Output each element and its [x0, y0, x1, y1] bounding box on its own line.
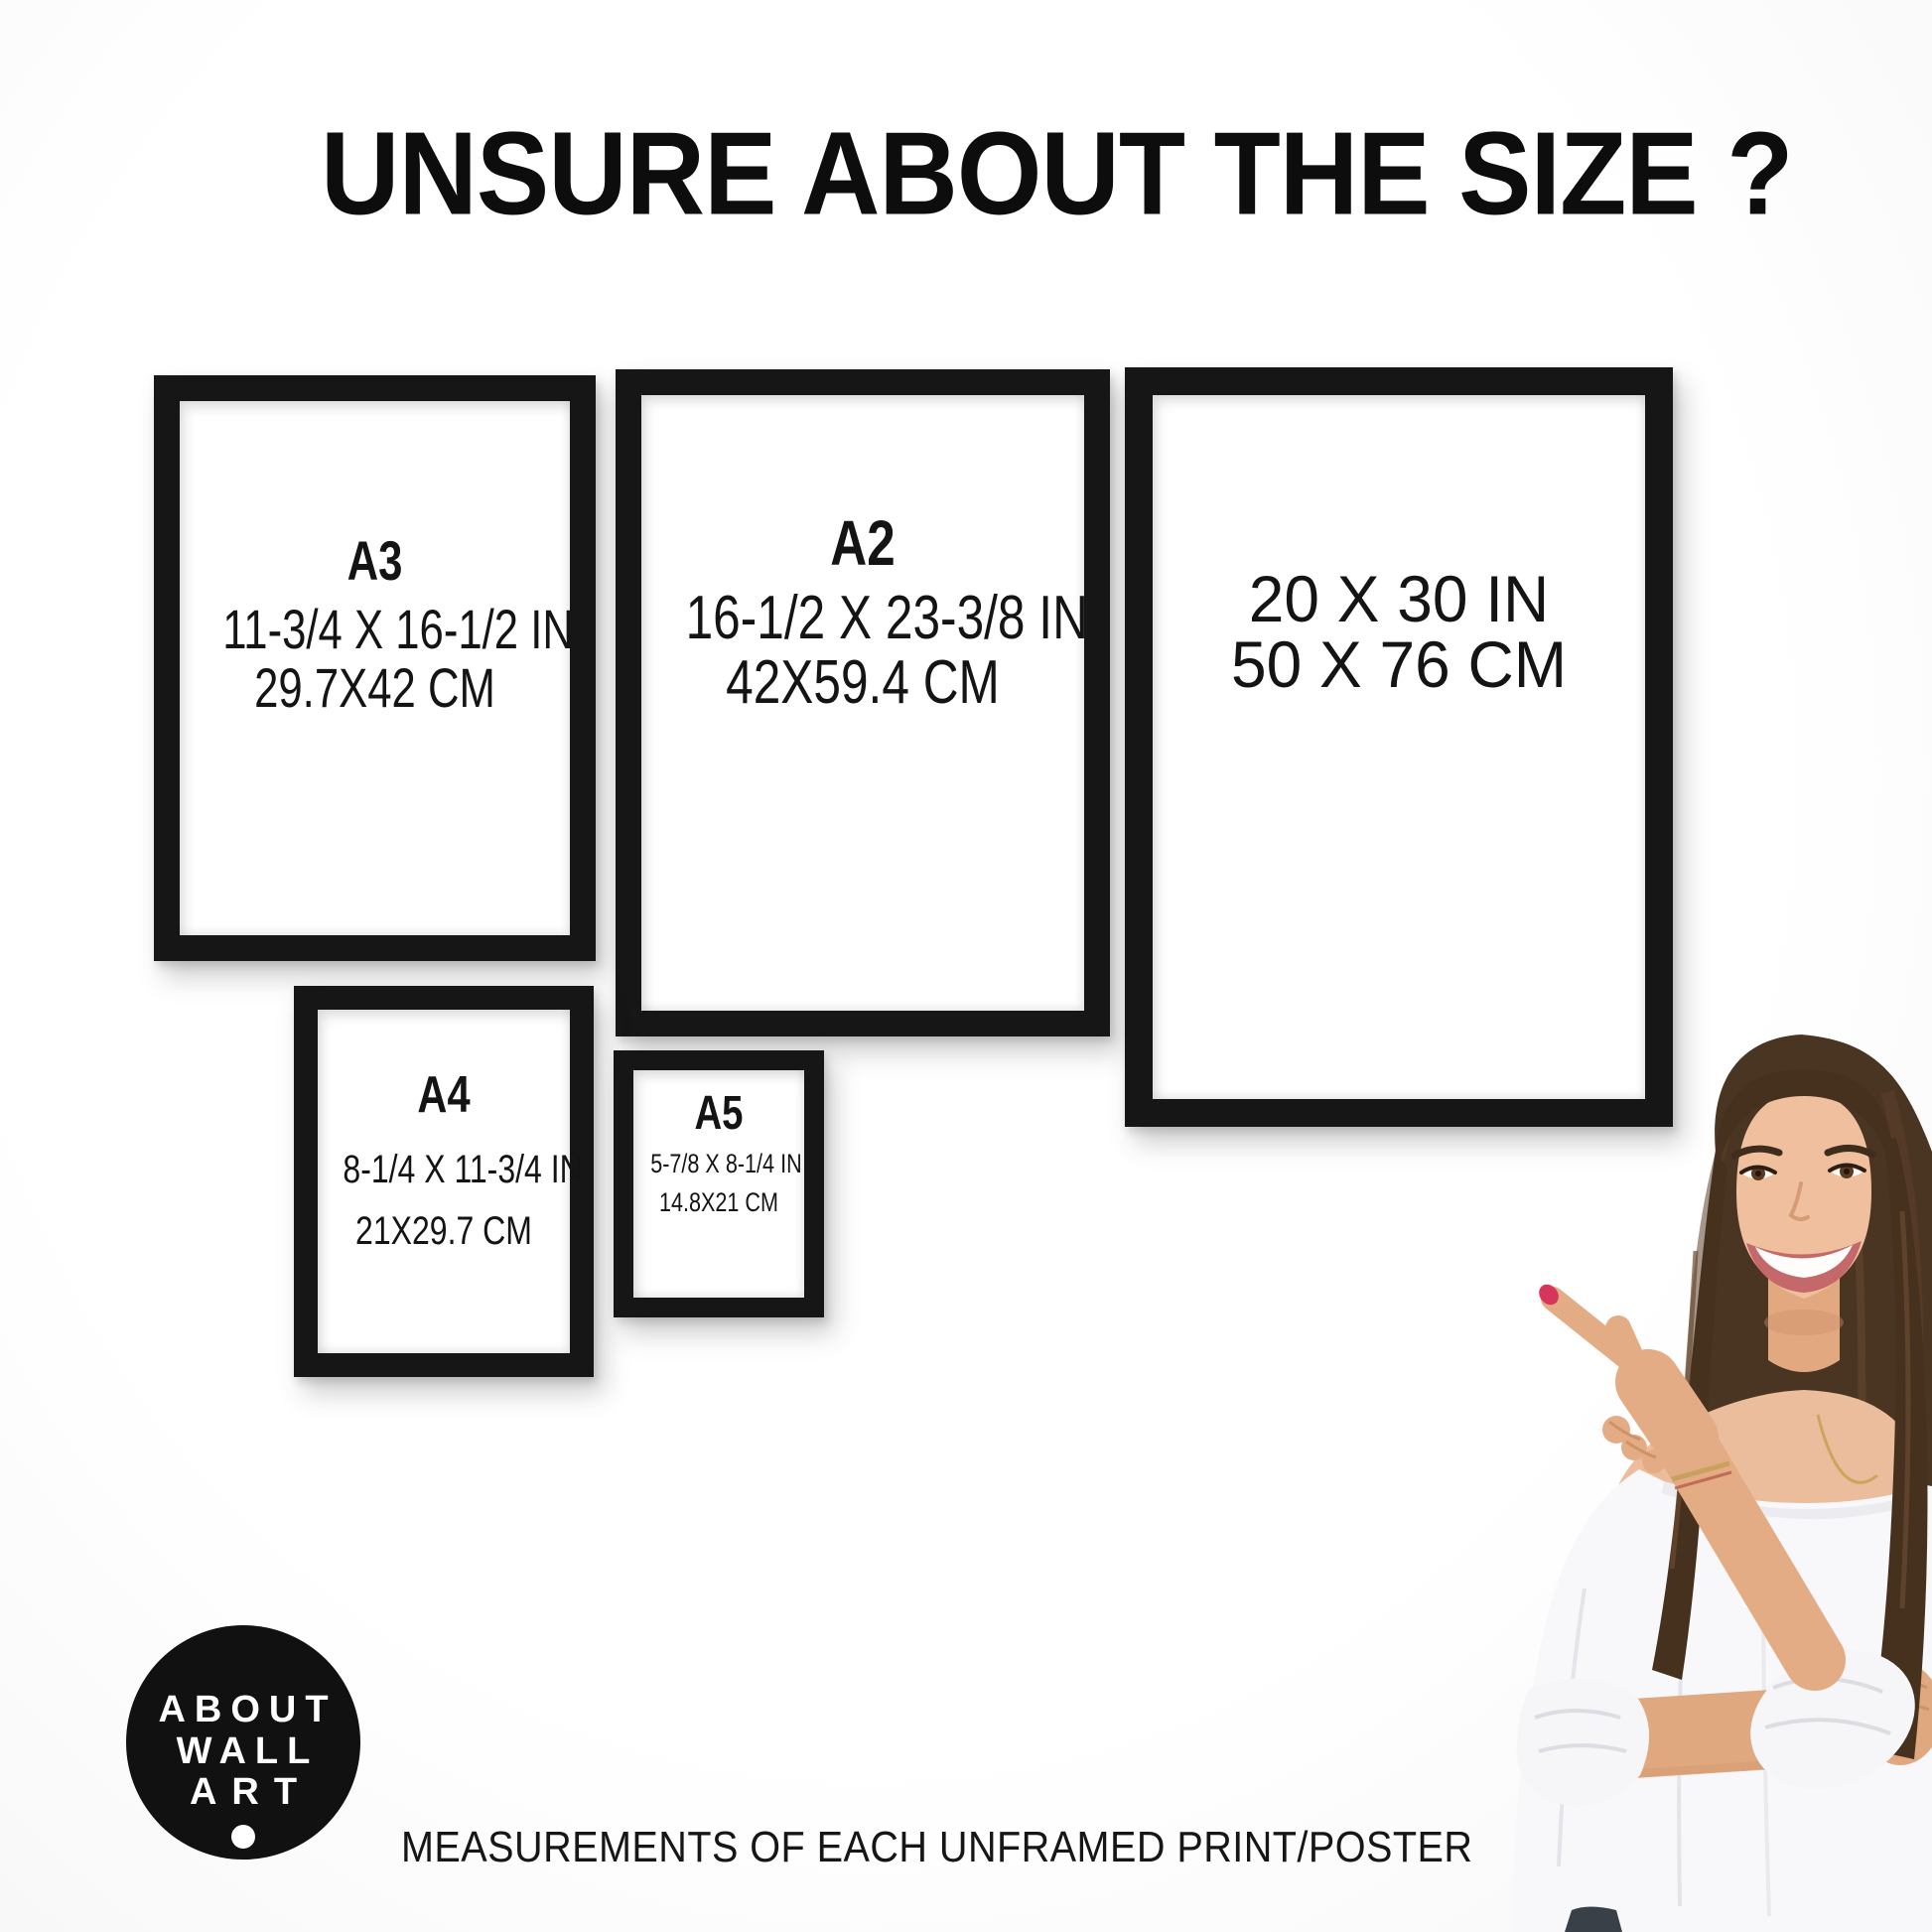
- frame-paper: 20 X 30 IN 50 X 76 CM: [1153, 395, 1645, 1099]
- logo-line-2: WALL: [158, 1732, 337, 1770]
- size-frame-a4: A4 8-1/4 X 11-3/4 IN 21X29.7 CM: [294, 986, 594, 1377]
- brand-logo: ABOUT WALL ART: [126, 1625, 360, 1860]
- size-frame-a2: A2 16-1/2 X 23-3/8 IN 42X59.4 CM: [616, 369, 1110, 1036]
- frame-size-inches: 20 X 30 IN: [1160, 566, 1637, 631]
- frame-size-inches: 5-7/8 X 8-1/4 IN: [650, 1145, 787, 1183]
- frame-size-name: A4: [343, 1065, 544, 1125]
- frame-paper: A5 5-7/8 X 8-1/4 IN 14.8X21 CM: [633, 1070, 804, 1298]
- measurements-caption: MEASUREMENTS OF EACH UNFRAMED PRINT/POST…: [401, 1823, 1384, 1872]
- logo-dot: [231, 1825, 255, 1849]
- frame-size-inches: 11-3/4 X 16-1/2 IN: [222, 601, 527, 659]
- frame-size-name: A2: [686, 506, 1040, 580]
- frame-size-cm: 50 X 76 CM: [1160, 631, 1637, 697]
- frame-size-cm: 42X59.4 CM: [686, 650, 1040, 715]
- logo-text: ABOUT WALL ART: [158, 1691, 328, 1811]
- frame-size-cm: 14.8X21 CM: [650, 1183, 787, 1222]
- size-frame-a5: A5 5-7/8 X 8-1/4 IN 14.8X21 CM: [614, 1050, 824, 1317]
- frame-size-name: A5: [650, 1086, 787, 1141]
- frame-size-name: A3: [222, 528, 527, 593]
- size-frame-a3: A3 11-3/4 X 16-1/2 IN 29.7X42 CM: [154, 375, 596, 961]
- frame-paper: A4 8-1/4 X 11-3/4 IN 21X29.7 CM: [318, 1010, 570, 1353]
- frame-size-cm: 21X29.7 CM: [343, 1200, 544, 1262]
- jeans: [1565, 1907, 1622, 1932]
- pointing-woman-illustration: [1436, 1033, 1932, 1932]
- page-title: UNSURE ABOUT THE SIZE ?: [321, 115, 1704, 233]
- logo-line-1: ABOUT: [158, 1691, 337, 1728]
- frame-paper: A2 16-1/2 X 23-3/8 IN 42X59.4 CM: [641, 395, 1084, 1011]
- frame-size-cm: 29.7X42 CM: [222, 659, 527, 718]
- frame-size-inches: 8-1/4 X 11-3/4 IN: [343, 1139, 544, 1200]
- logo-line-3: ART: [158, 1773, 343, 1811]
- size-guide-infographic: UNSURE ABOUT THE SIZE ? A3 11-3/4 X 16-1…: [0, 0, 1932, 1932]
- frame-size-inches: 16-1/2 X 23-3/8 IN: [686, 586, 1040, 650]
- frame-paper: A3 11-3/4 X 16-1/2 IN 29.7X42 CM: [180, 401, 570, 935]
- size-frame-20x30: 20 X 30 IN 50 X 76 CM: [1125, 367, 1673, 1127]
